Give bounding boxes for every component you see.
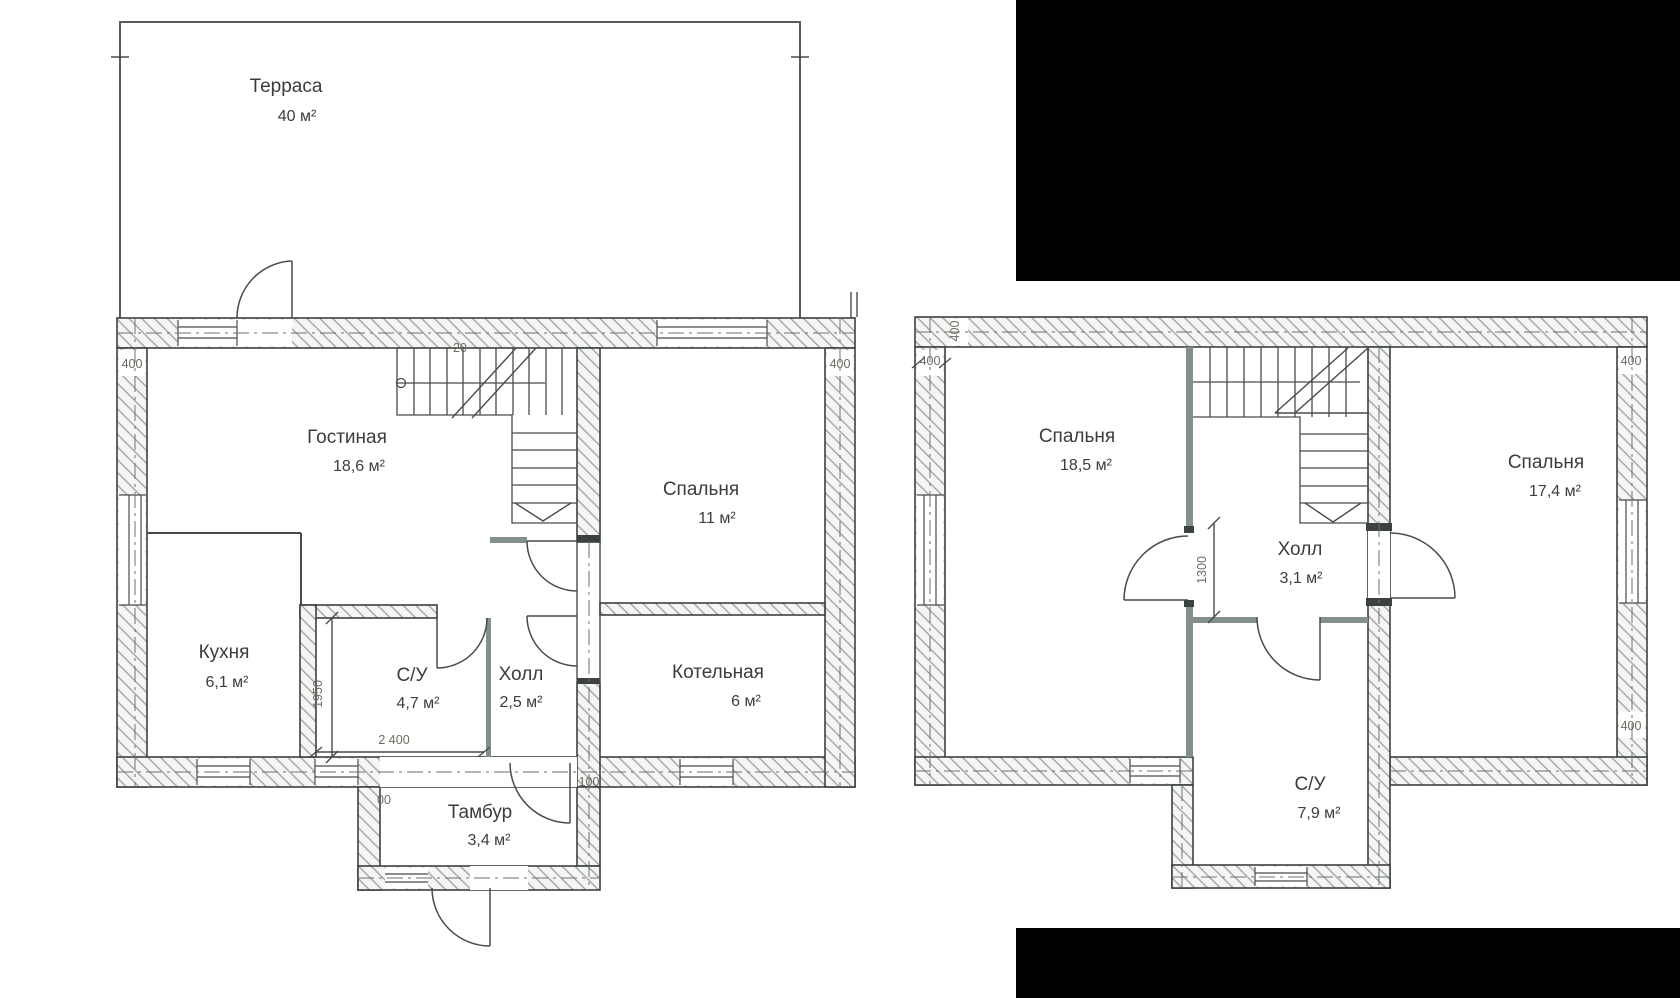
floor-plan-page: Терраса 40 м² Гостиная 18,6 м² Спальня 1… <box>0 0 1680 998</box>
terrace-outline <box>111 22 851 318</box>
room-label-boiler: Котельная <box>672 662 764 683</box>
dimension-label: 400 <box>948 321 962 342</box>
dimension-label: 2 400 <box>378 733 409 747</box>
floor2-axis-lines <box>915 317 1647 888</box>
terrace-door <box>237 261 292 318</box>
redaction-block-bottom-right <box>1016 928 1680 998</box>
bedroom1-door <box>1124 536 1188 600</box>
stair-steps <box>1210 347 1368 503</box>
room-area-kitchen: 6,1 м² <box>205 674 249 691</box>
room-label-living: Гостиная <box>307 427 387 448</box>
window <box>119 495 147 605</box>
room-area-vestibule: 3,4 м² <box>467 832 511 849</box>
dimension-label: 400 <box>830 357 851 371</box>
bedroom-door <box>527 541 577 591</box>
floor1-plan: Терраса 40 м² Гостиная 18,6 м² Спальня 1… <box>111 22 855 946</box>
bedroom2-door <box>1390 533 1455 598</box>
floor1-windows <box>119 320 768 786</box>
room-label-wc: С/У <box>396 665 428 686</box>
floor1-room-labels: Терраса 40 м² Гостиная 18,6 м² Спальня 1… <box>199 76 764 849</box>
dimension-label: 1950 <box>311 680 325 708</box>
dimension-label: 400 <box>920 354 941 368</box>
floor1-interior-walls <box>147 348 825 787</box>
room-label-terrace: Терраса <box>250 76 323 97</box>
room-label-bedroom1: Спальня <box>1039 426 1115 447</box>
room-area-hall: 2,5 м² <box>499 694 543 711</box>
dimension-label: 20 <box>453 341 467 355</box>
room-area-wc: 4,7 м² <box>396 695 440 712</box>
dimension-label: 400 <box>122 357 143 371</box>
room-label-vestibule: Тамбур <box>448 802 513 823</box>
room-area-bedroom: 11 м² <box>698 510 736 527</box>
entrance-door <box>432 888 490 946</box>
boiler-door <box>527 616 577 666</box>
wc-door <box>1257 617 1320 680</box>
stairs-floor2 <box>1193 347 1368 523</box>
dimension-label: 400 <box>1621 354 1642 368</box>
room-area-bedroom1: 18,5 м² <box>1060 457 1113 474</box>
dimension-label: 00 <box>377 793 391 807</box>
room-label-hall: Холл <box>499 664 544 685</box>
floor1-doors <box>237 261 577 946</box>
stair-direction-arrow <box>1305 503 1361 522</box>
room-area-wc: 7,9 м² <box>1297 805 1341 822</box>
dimension-label: 1300 <box>1195 556 1209 584</box>
wc-door <box>437 618 487 668</box>
room-area-bedroom2: 17,4 м² <box>1529 483 1582 500</box>
room-area-terrace: 40 м² <box>278 108 317 125</box>
room-area-living: 18,6 м² <box>333 458 386 475</box>
dimension-label: 400 <box>1621 719 1642 733</box>
room-area-boiler: 6 м² <box>731 693 761 710</box>
stair-direction-arrow <box>515 503 571 521</box>
room-label-bedroom: Спальня <box>663 479 739 500</box>
floor2-plan: Спальня 18,5 м² Холл 3,1 м² Спальня 17,4… <box>857 292 1647 888</box>
stairs-floor1 <box>397 348 578 523</box>
room-area-hall: 3,1 м² <box>1279 570 1323 587</box>
room-label-bedroom2: Спальня <box>1508 452 1584 473</box>
room-label-wc: С/У <box>1294 774 1326 795</box>
dimension-label: 100 <box>579 775 600 789</box>
room-label-hall: Холл <box>1278 539 1323 560</box>
floor2-dimension-lines <box>912 358 1220 623</box>
room-label-kitchen: Кухня <box>199 642 250 663</box>
redaction-block-top-right <box>1016 0 1680 281</box>
floor-plan-drawing: Терраса 40 м² Гостиная 18,6 м² Спальня 1… <box>0 0 1680 998</box>
